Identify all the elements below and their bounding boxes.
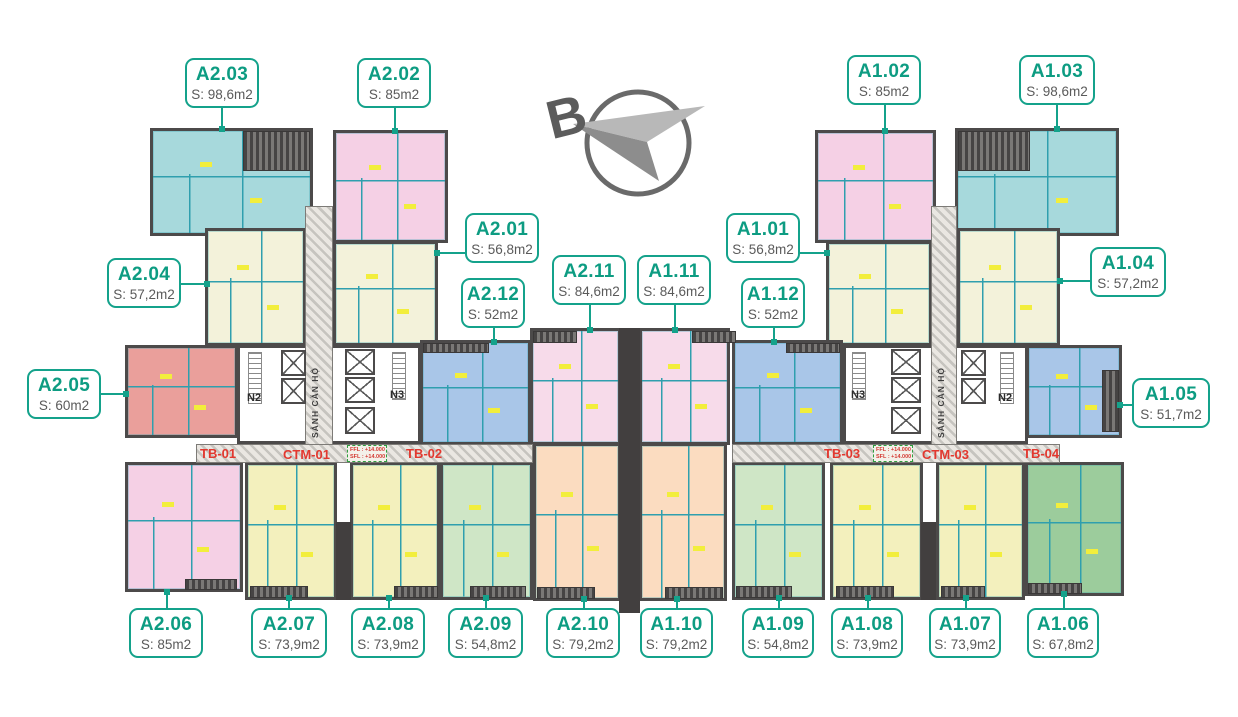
unit-area: S: 73,9m2 — [833, 636, 901, 653]
connector — [1056, 104, 1058, 129]
elevator — [961, 350, 986, 376]
connector — [589, 305, 591, 330]
unit-label-a1-03[interactable]: A1.03 S: 98,6m2 — [1019, 55, 1095, 105]
unit-label-a1-10[interactable]: A1.10 S: 79,2m2 — [640, 608, 713, 658]
apartment-a1-08[interactable] — [830, 462, 923, 600]
unit-id: A1.01 — [728, 219, 798, 241]
apartment-a2-02[interactable] — [333, 130, 448, 243]
unit-area: S: 85m2 — [849, 83, 919, 100]
service-shaft — [619, 328, 640, 445]
connector — [437, 252, 465, 254]
unit-id: A1.08 — [833, 614, 901, 636]
connector — [181, 283, 207, 285]
unit-area: S: 54,8m2 — [450, 636, 521, 653]
elevator — [281, 350, 306, 376]
unit-label-a2-11[interactable]: A2.11 S: 84,6m2 — [552, 255, 626, 305]
unit-label-a2-12[interactable]: A2.12 S: 52m2 — [461, 278, 525, 328]
loggia-strip — [394, 586, 438, 598]
unit-label-a1-05[interactable]: A1.05 S: 51,7m2 — [1132, 378, 1210, 428]
unit-label-a2-10[interactable]: A2.10 S: 79,2m2 — [546, 608, 620, 658]
unit-id: A2.09 — [450, 614, 521, 636]
ffl-line: FFL : +14.000 — [876, 447, 910, 454]
ffl-line: FFL : +14.000 — [350, 447, 384, 454]
corridor-label-ctm03: CTM-03 — [922, 447, 969, 462]
unit-label-a1-06[interactable]: A1.06 S: 67,8m2 — [1027, 608, 1099, 658]
lobby-label-left: SẢNH CĂN HỘ — [310, 352, 320, 438]
unit-id: A2.03 — [187, 64, 257, 86]
level-mark-right: FFL : +14.000 SFL : +14.000 — [873, 445, 913, 462]
connector — [674, 305, 676, 330]
unit-id: A2.02 — [359, 64, 429, 86]
corridor-label-tb01: TB-01 — [200, 446, 236, 461]
balcony-strip — [692, 331, 736, 343]
unit-area: S: 51,7m2 — [1134, 406, 1208, 423]
unit-id: A2.08 — [353, 614, 423, 636]
apartment-a1-06[interactable] — [1025, 462, 1124, 596]
stair-label-n3-left: N3 — [390, 389, 404, 401]
unit-area: S: 73,9m2 — [931, 636, 999, 653]
apartment-a1-01[interactable] — [826, 241, 932, 346]
unit-area: S: 57,2m2 — [109, 286, 179, 303]
unit-id: A2.04 — [109, 264, 179, 286]
balcony-strip — [786, 343, 840, 353]
unit-id: A1.04 — [1092, 253, 1164, 275]
sfl-line: SFL : +14.000 — [350, 454, 384, 461]
apartment-a2-08[interactable] — [350, 462, 440, 600]
unit-label-a2-04[interactable]: A2.04 S: 57,2m2 — [107, 258, 181, 308]
unit-label-a1-12[interactable]: A1.12 S: 52m2 — [741, 278, 805, 328]
stair-label-n3-right: N3 — [851, 389, 865, 401]
unit-label-a2-03[interactable]: A2.03 S: 98,6m2 — [185, 58, 259, 108]
elevator — [891, 377, 921, 403]
unit-area: S: 98,6m2 — [187, 86, 257, 103]
balcony-strip — [1102, 370, 1119, 432]
unit-label-a2-06[interactable]: A2.06 S: 85m2 — [129, 608, 203, 658]
unit-area: S: 52m2 — [463, 306, 523, 323]
unit-id: A2.05 — [29, 375, 99, 397]
balcony-strip — [533, 331, 577, 343]
unit-id: A2.10 — [548, 614, 618, 636]
service-shaft — [336, 522, 351, 600]
connector — [101, 393, 126, 395]
unit-area: S: 73,9m2 — [353, 636, 423, 653]
apartment-a2-07[interactable] — [245, 462, 337, 600]
elevator — [891, 407, 921, 434]
lobby-label-right: SẢNH CĂN HỘ — [936, 352, 946, 438]
unit-label-a1-08[interactable]: A1.08 S: 73,9m2 — [831, 608, 903, 658]
loggia-strip — [736, 586, 792, 598]
apartment-a1-11[interactable] — [639, 328, 730, 445]
unit-id: A1.10 — [642, 614, 711, 636]
unit-id: A1.06 — [1029, 614, 1097, 636]
elevator — [345, 377, 375, 403]
unit-id: A1.05 — [1134, 384, 1208, 406]
unit-label-a1-11[interactable]: A1.11 S: 84,6m2 — [637, 255, 711, 305]
compass-north-label: B — [540, 83, 592, 151]
elevator — [345, 407, 375, 434]
balcony-strip — [423, 343, 489, 353]
unit-label-a1-02[interactable]: A1.02 S: 85m2 — [847, 55, 921, 105]
loggia-strip — [1028, 583, 1082, 594]
unit-id: A1.07 — [931, 614, 999, 636]
apartment-a2-05[interactable] — [125, 345, 238, 438]
unit-area: S: 79,2m2 — [642, 636, 711, 653]
apartment-a2-10[interactable] — [533, 443, 621, 601]
unit-area: S: 56,8m2 — [467, 241, 537, 258]
unit-area: S: 54,8m2 — [744, 636, 812, 653]
unit-id: A1.11 — [639, 261, 709, 283]
unit-label-a1-04[interactable]: A1.04 S: 57,2m2 — [1090, 247, 1166, 297]
loggia-strip — [470, 586, 526, 598]
apartment-a1-02[interactable] — [815, 130, 936, 243]
apartment-a1-12[interactable] — [732, 340, 843, 445]
connector — [221, 107, 223, 129]
balcony-strip — [243, 131, 310, 171]
compass: B — [533, 78, 723, 208]
unit-id: A1.12 — [743, 284, 803, 306]
sfl-line: SFL : +14.000 — [876, 454, 910, 461]
unit-label-a1-09[interactable]: A1.09 S: 54,8m2 — [742, 608, 814, 658]
unit-id: A2.07 — [253, 614, 325, 636]
apartment-a1-09[interactable] — [732, 462, 825, 600]
unit-id: A1.09 — [744, 614, 812, 636]
corridor-label-tb03: TB-03 — [824, 446, 860, 461]
service-shaft — [921, 522, 936, 600]
corridor-label-tb02: TB-02 — [406, 446, 442, 461]
apartment-a1-07[interactable] — [936, 462, 1025, 600]
unit-area: S: 84,6m2 — [554, 283, 624, 300]
connector — [800, 252, 827, 254]
unit-area: S: 98,6m2 — [1021, 83, 1093, 100]
apartment-a2-04[interactable] — [205, 228, 306, 346]
elevator — [961, 378, 986, 404]
unit-id: A2.12 — [463, 284, 523, 306]
level-mark-left: FFL : +14.000 SFL : +14.000 — [347, 445, 387, 462]
unit-label-a2-09[interactable]: A2.09 S: 54,8m2 — [448, 608, 523, 658]
connector — [884, 104, 886, 131]
unit-id: A2.06 — [131, 614, 201, 636]
unit-label-a1-07[interactable]: A1.07 S: 73,9m2 — [929, 608, 1001, 658]
unit-area: S: 67,8m2 — [1029, 636, 1097, 653]
unit-area: S: 84,6m2 — [639, 283, 709, 300]
elevator — [281, 378, 306, 404]
elevator — [345, 349, 375, 375]
unit-id: A2.11 — [554, 261, 624, 283]
unit-area: S: 73,9m2 — [253, 636, 325, 653]
loggia-strip — [185, 579, 237, 590]
unit-area: S: 85m2 — [131, 636, 201, 653]
apartment-a2-11[interactable] — [530, 328, 621, 445]
corridor-label-ctm01: CTM-01 — [283, 447, 330, 462]
apartment-a2-01[interactable] — [333, 241, 438, 346]
stair-label-n2-right: N2 — [998, 392, 1012, 404]
unit-area: S: 79,2m2 — [548, 636, 618, 653]
unit-label-a2-07[interactable]: A2.07 S: 73,9m2 — [251, 608, 327, 658]
balcony-strip — [958, 131, 1030, 171]
service-shaft — [619, 443, 640, 613]
unit-id: A1.02 — [849, 61, 919, 83]
apartment-a2-06[interactable] — [125, 462, 243, 592]
unit-area: S: 85m2 — [359, 86, 429, 103]
unit-area: S: 57,2m2 — [1092, 275, 1164, 292]
apartment-a1-10[interactable] — [639, 443, 727, 601]
connector — [394, 107, 396, 131]
loggia-strip — [250, 586, 308, 598]
elevator — [891, 349, 921, 375]
corridor-label-tb04: TB-04 — [1023, 446, 1059, 461]
unit-label-a2-01[interactable]: A2.01 S: 56,8m2 — [465, 213, 539, 263]
unit-area: S: 52m2 — [743, 306, 803, 323]
unit-label-a1-01[interactable]: A1.01 S: 56,8m2 — [726, 213, 800, 263]
unit-id: A2.01 — [467, 219, 537, 241]
unit-area: S: 56,8m2 — [728, 241, 798, 258]
apartment-a2-09[interactable] — [440, 462, 533, 600]
apartment-a2-12[interactable] — [420, 340, 531, 445]
unit-area: S: 60m2 — [29, 397, 99, 414]
floor-plan: N2 N3 SẢNH CĂN HỘ N3 N2 SẢNH CĂN HỘ TB-0… — [0, 0, 1238, 717]
connector — [1120, 404, 1132, 406]
unit-label-a2-08[interactable]: A2.08 S: 73,9m2 — [351, 608, 425, 658]
stair-label-n2-left: N2 — [247, 392, 261, 404]
unit-label-a2-05[interactable]: A2.05 S: 60m2 — [27, 369, 101, 419]
connector — [1060, 280, 1090, 282]
apartment-a1-04[interactable] — [957, 228, 1060, 346]
unit-label-a2-02[interactable]: A2.02 S: 85m2 — [357, 58, 431, 108]
unit-id: A1.03 — [1021, 61, 1093, 83]
